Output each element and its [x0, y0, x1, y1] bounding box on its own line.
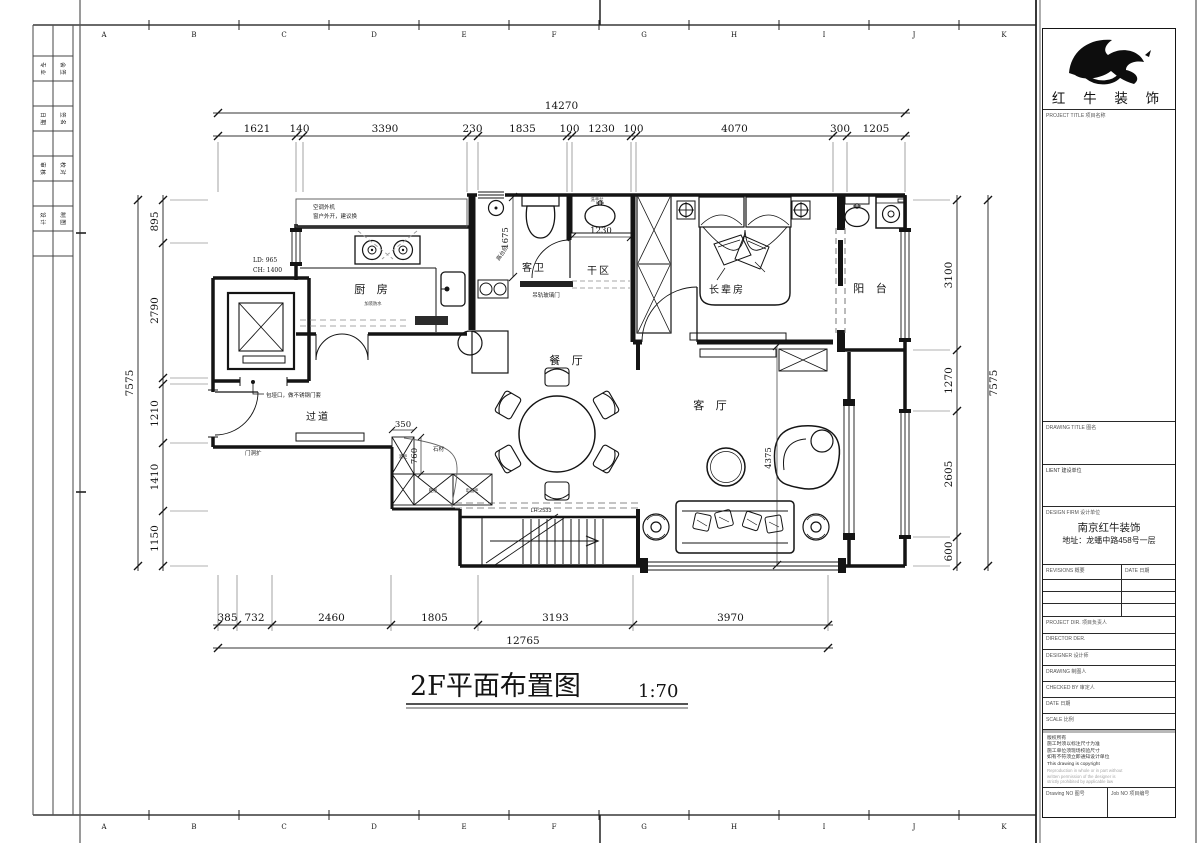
margin-cell: 日 期: [39, 112, 46, 125]
drawing-no-row: Drawing NO 图号 Job NO 项目编号: [1043, 787, 1175, 788]
walls: [213, 195, 905, 566]
speaker-icon: [803, 514, 829, 540]
dim-label: 1205: [863, 123, 890, 135]
drawing-no-label: Drawing NO 图号: [1046, 790, 1085, 797]
margin-cell: 会 签: [59, 62, 67, 75]
director-label: DIRECTOR DER.: [1046, 636, 1085, 642]
dim-label: 300: [830, 123, 850, 135]
speaker-icon: [643, 514, 669, 540]
dim-chain: 3857322460180531933970: [213, 575, 833, 631]
title-text: 2F平面布置图: [410, 671, 581, 702]
tv-board: [690, 333, 786, 340]
wash-basin: [585, 205, 615, 227]
stairs: [482, 514, 603, 567]
margin-cell: 审 核: [39, 162, 47, 175]
designer-row: DESIGNER 设计师: [1043, 649, 1175, 650]
dim-label: 3970: [717, 612, 744, 624]
room-label-living: 客 厅: [693, 398, 731, 412]
grid-letter-top: H: [731, 31, 737, 39]
entry-door-swing: [215, 392, 258, 435]
grid-letter-bottom: F: [552, 823, 557, 831]
ac-note-line1: 空调外机: [313, 203, 336, 211]
client-row: LIENT 建设单位: [1043, 464, 1175, 465]
grid-letter-top: K: [1001, 31, 1007, 39]
dim-chain: 7575: [984, 195, 1000, 571]
dining-table: [519, 396, 595, 472]
margin-cell: 制 图: [59, 212, 67, 225]
checked-by-label: CHECKED BY 审定人: [1046, 684, 1095, 691]
dim-chain: 14270: [213, 100, 910, 117]
room-label-elder: 长辈房: [709, 283, 745, 296]
grid-letter-top: F: [552, 31, 557, 39]
dim-label: 14270: [545, 100, 578, 112]
toilet-bowl: [526, 206, 554, 238]
drawing-sheet: 专 业会 签日 期签 名审 核校 对设 计制 图 AABBCCDDEEFFGGH…: [0, 0, 1200, 843]
grid-letter-bottom: B: [191, 823, 196, 831]
dim-label: 600: [943, 541, 955, 561]
grid-letter-bottom: J: [912, 823, 916, 831]
client-label: LIENT 建设单位: [1046, 467, 1081, 474]
firm-name: 南京红牛装饰: [1043, 520, 1175, 535]
designer-label: DESIGNER 设计师: [1046, 652, 1089, 659]
margin-cell: 签 名: [59, 112, 67, 125]
elevator-shaft: [228, 293, 294, 386]
balcony: [836, 196, 906, 333]
dim-label: 3100: [943, 262, 955, 289]
headboard: [746, 197, 791, 227]
pillow: [735, 236, 769, 269]
date-label: DATE 日期: [1046, 700, 1070, 707]
grid-letter-top: A: [100, 31, 107, 39]
copyright-blur-line: strictly prohibited by applicable law: [1047, 779, 1122, 785]
grid-letter-bottom: G: [641, 823, 647, 831]
date-col-label: DATE 日期: [1125, 567, 1149, 574]
room-label-bath: 客卫: [522, 261, 546, 274]
dim-label: 230: [462, 123, 482, 135]
dim-label: 1150: [149, 525, 161, 552]
grid-letter-top: C: [281, 31, 286, 39]
project-title-label: PROJECT TITLE 项目名称: [1046, 112, 1106, 119]
side-table: [811, 430, 833, 452]
door-note: 门洞扩: [245, 449, 262, 457]
drawing-title-label: DRAWING TITLE 图名: [1046, 424, 1096, 431]
dim-760: 760: [410, 448, 420, 464]
dim-label: 1410: [149, 464, 161, 491]
ceiling-ac-icon: [792, 201, 810, 219]
cab-tall-label: 酒柜: [399, 453, 408, 460]
grid-letter-rulers: AABBCCDDEEFFGGHHIIJJKK: [100, 20, 1007, 831]
opening-note: 包垭口，做不锈钢门套: [266, 391, 322, 399]
dim-label: 7575: [988, 370, 1000, 397]
grid-letter-bottom: E: [461, 823, 466, 831]
media-console: [700, 349, 776, 357]
dim-label: 2460: [318, 612, 345, 624]
door-mat: [415, 316, 448, 325]
drawing-title-row: DRAWING TITLE 图名: [1043, 421, 1175, 422]
balcony-sink: [845, 208, 869, 227]
balcony-counter: [845, 196, 869, 204]
copyright-block: 版权所有 施工时须以标注尺寸为准 施工单位须现场校验尺寸 如有不符须立即通知设计…: [1047, 736, 1122, 785]
room-label-balcony: 阳 台: [853, 281, 891, 295]
toilet-tank: [522, 196, 559, 206]
title-scale: 1:70: [638, 681, 678, 702]
grid-letter-top: D: [371, 31, 377, 39]
dim-label: 3193: [542, 612, 569, 624]
drawing-title: 2F平面布置图 1:70: [406, 671, 688, 708]
sill-cabinet: [296, 433, 364, 441]
dim-label: 1270: [943, 367, 955, 394]
room-label-corridor: 过道: [306, 410, 330, 423]
grid-letter-bottom: C: [281, 823, 286, 831]
room-label-kitchen: 厨 房: [354, 283, 392, 296]
coffee-table: [707, 448, 745, 486]
grid-letter-top: J: [912, 31, 916, 39]
grid-letter-top: E: [461, 31, 466, 39]
dim-label: 1835: [509, 123, 536, 135]
hongniu-logo-icon: [1057, 31, 1161, 85]
dim-label: 732: [244, 612, 264, 624]
kitchen-door: [316, 334, 368, 360]
living-room: [643, 342, 839, 569]
design-firm-label: DESIGN FIRM 设计单位: [1046, 509, 1100, 516]
revisions-label: REVISIONS 概要: [1046, 567, 1085, 574]
dim-4375: 4375: [764, 447, 774, 469]
dim-label: 7575: [124, 370, 136, 397]
bedroom-door-swing: [642, 287, 697, 342]
margin-cell: 设 计: [39, 212, 47, 225]
stove: [355, 236, 420, 264]
dim-1675: 1675: [501, 227, 511, 249]
cab-mid-label: 鞋柜: [429, 487, 438, 494]
stool: [458, 331, 482, 355]
ceiling-ac-icon: [677, 201, 695, 219]
dim-chain: 8952790121014101150: [149, 195, 208, 571]
drawing-row: DRAWING 制图人: [1043, 665, 1175, 666]
cab-right-label: 电器柜: [466, 487, 480, 494]
dining-chairs: [494, 368, 620, 500]
basin-note: 洗手盆: [591, 196, 605, 203]
checked-row: CHECKED BY 审定人: [1043, 681, 1175, 682]
grid-letter-bottom: K: [1001, 823, 1007, 831]
dim-label: 1230: [588, 123, 615, 135]
dim-chain: 12765: [213, 635, 833, 652]
dim-label: 385: [217, 612, 237, 624]
guest-bath: [478, 196, 573, 298]
dim-label: 1805: [421, 612, 448, 624]
director-row: DIRECTOR DER.: [1043, 633, 1175, 634]
headboard: [699, 197, 744, 227]
stone-note: 石材: [433, 445, 445, 453]
revisions-header: REVISIONS 概要 DATE 日期: [1043, 564, 1175, 565]
dim-chain: 7575: [124, 195, 142, 571]
dim-label: 1621: [244, 123, 271, 135]
sofa-pillows: [693, 509, 784, 533]
stair-height-note: LH:2533: [531, 508, 552, 514]
wardrobe: [637, 196, 671, 333]
firm-address: 地址：龙蟠中路458号一层: [1043, 535, 1175, 546]
room-label-dry: 干区: [587, 265, 611, 277]
margin-cell: 校 对: [59, 162, 67, 175]
ac-platform: [296, 199, 467, 227]
sliding-door-leaf: [838, 240, 843, 286]
dim-350: 350: [395, 420, 411, 430]
date-row: DATE 日期: [1043, 697, 1175, 698]
floor-plan-canvas: 专 业会 签日 期签 名审 核校 对设 计制 图 AABBCCDDEEFFGGH…: [0, 0, 1200, 843]
grid-letter-bottom: A: [100, 823, 107, 831]
title-block: 红 牛 装 饰 PROJECT TITLE 项目名称 DRAWING TITLE…: [1042, 28, 1176, 818]
dim-1230: 1230: [590, 226, 612, 236]
grid-letter-bottom: H: [731, 823, 737, 831]
under-counter-unit: [478, 280, 508, 298]
dim-label: 895: [149, 211, 161, 231]
dim-label: 140: [289, 123, 309, 135]
grid-letter-bottom: I: [823, 823, 826, 831]
dim-label: 4070: [721, 123, 748, 135]
scale-row: SCALE 比例: [1043, 713, 1175, 714]
elder-bedroom: [637, 196, 810, 342]
room-label-dining: 餐 厅: [549, 353, 587, 367]
margin-cell: 专 业: [39, 62, 47, 75]
dim-chain: 310012702605600: [913, 195, 961, 571]
project-dir-label: PROJECT DIR. 项目负责人: [1046, 619, 1107, 626]
brand-name: 红 牛 装 饰: [1043, 87, 1175, 107]
grid-letter-top: G: [641, 31, 647, 39]
dim-label: 2605: [943, 461, 955, 488]
dim-label: 2790: [149, 297, 161, 324]
dim-chain: 162114033902301835100123010040703001205: [213, 123, 910, 192]
copyright-blur-line: Reproduction in whole or in part without: [1047, 768, 1122, 774]
scale-label: SCALE 比例: [1046, 716, 1074, 723]
project-dir-row: PROJECT DIR. 项目负责人: [1043, 616, 1175, 617]
dimension-chains: 1427016211403390230183510012301004070300…: [124, 100, 1000, 652]
project-title-row: PROJECT TITLE 项目名称: [1043, 109, 1175, 110]
sofa: [676, 501, 794, 553]
ac-note-line2: 窗户外开，建议换: [313, 212, 358, 220]
kitchen-note: 加装防水: [364, 300, 382, 307]
drawing-person-label: DRAWING 制图人: [1046, 668, 1086, 675]
elevator-ch-dim: CH: 1400: [253, 267, 282, 274]
grid-letter-bottom: D: [371, 823, 377, 831]
dim-label: 100: [623, 123, 643, 135]
grid-letter-top: I: [823, 31, 826, 39]
dim-label: 12765: [506, 635, 539, 647]
grid-letter-top: B: [191, 31, 196, 39]
dim-label: 1210: [149, 400, 161, 427]
dim-label: 100: [559, 123, 579, 135]
sliding-track: [520, 281, 573, 287]
revisions-divider: [1121, 564, 1122, 616]
design-firm-row: DESIGN FIRM 设计单位: [1043, 506, 1175, 507]
dim-label: 3390: [372, 123, 399, 135]
job-no-label: Job NO 项目编号: [1111, 790, 1149, 797]
elevator-ld-dim: LD: 965: [253, 257, 277, 264]
slide-door-note: 吊轨玻璃门: [532, 291, 560, 299]
